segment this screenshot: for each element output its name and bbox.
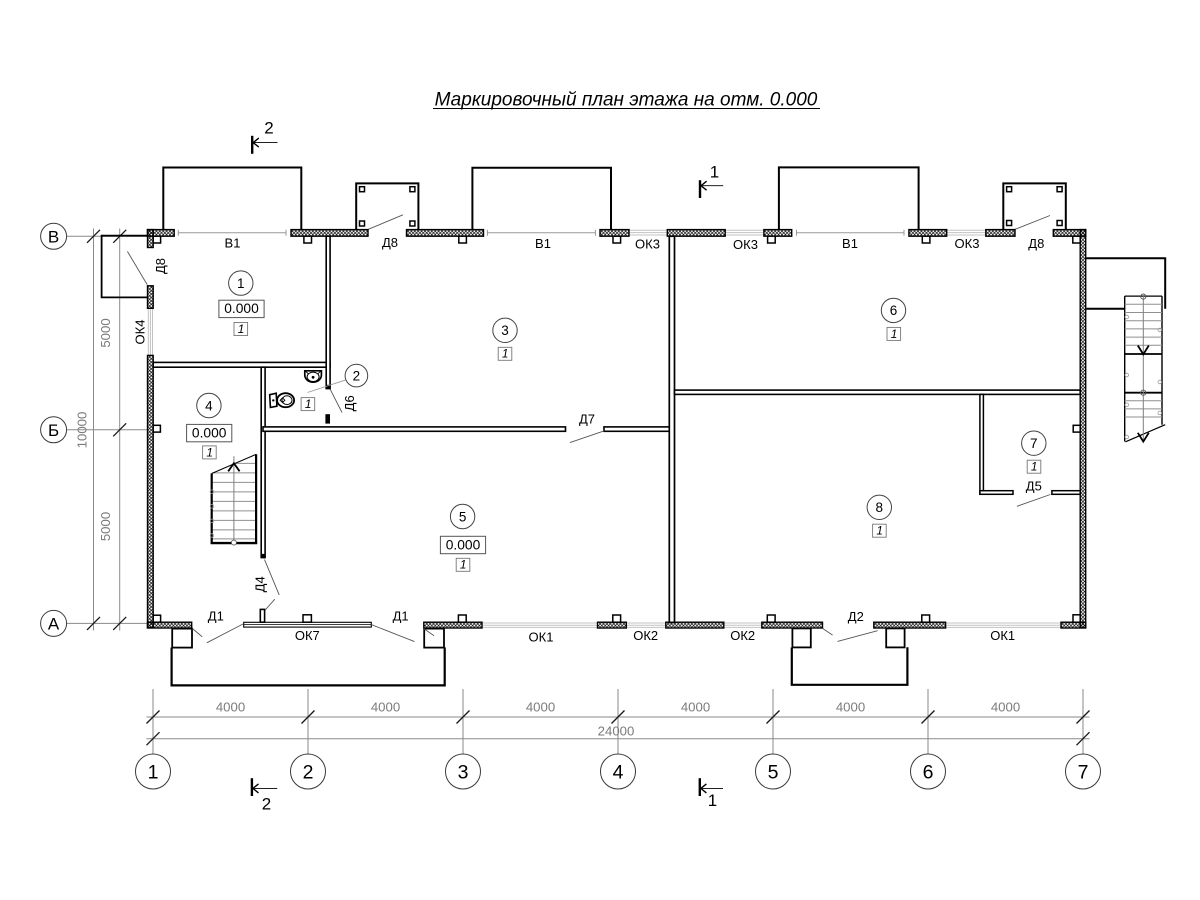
svg-text:В1: В1: [842, 236, 858, 251]
svg-text:4000: 4000: [371, 700, 400, 715]
svg-text:ОК3: ОК3: [733, 237, 758, 252]
svg-text:ОК3: ОК3: [955, 236, 980, 251]
svg-text:Д8: Д8: [153, 258, 168, 274]
svg-text:Б: Б: [48, 421, 59, 440]
svg-text:1: 1: [502, 347, 509, 361]
svg-text:4000: 4000: [681, 700, 710, 715]
svg-text:1: 1: [708, 791, 717, 810]
svg-text:ОК7: ОК7: [295, 628, 320, 643]
svg-text:1: 1: [1031, 460, 1038, 474]
svg-text:0.000: 0.000: [446, 537, 481, 552]
svg-text:Д5: Д5: [1026, 478, 1042, 493]
svg-text:Д4: Д4: [253, 576, 268, 592]
svg-text:4000: 4000: [836, 700, 865, 715]
svg-text:Д8: Д8: [1028, 236, 1044, 251]
svg-text:0.000: 0.000: [192, 425, 227, 440]
svg-text:5: 5: [459, 509, 467, 524]
svg-text:Д7: Д7: [579, 412, 595, 427]
svg-text:7: 7: [1030, 436, 1038, 451]
svg-text:ОК1: ОК1: [990, 628, 1015, 643]
svg-text:ОК4: ОК4: [133, 320, 148, 345]
svg-text:1: 1: [206, 445, 213, 459]
svg-text:4000: 4000: [526, 700, 555, 715]
svg-text:1: 1: [237, 276, 245, 291]
svg-text:В1: В1: [535, 236, 551, 251]
svg-text:4: 4: [205, 398, 213, 413]
svg-text:4: 4: [613, 762, 624, 784]
svg-text:Д6: Д6: [342, 395, 357, 411]
svg-text:3: 3: [458, 762, 469, 784]
svg-text:В1: В1: [225, 236, 241, 251]
svg-text:В: В: [48, 227, 59, 246]
svg-text:1: 1: [876, 524, 883, 538]
svg-text:5: 5: [768, 762, 779, 784]
svg-text:Д1: Д1: [208, 608, 224, 623]
svg-text:1: 1: [305, 397, 312, 411]
svg-text:2: 2: [264, 119, 273, 138]
svg-text:1: 1: [148, 762, 159, 784]
svg-text:ОК2: ОК2: [633, 628, 658, 643]
svg-text:24000: 24000: [598, 724, 635, 739]
svg-text:1: 1: [710, 163, 719, 182]
svg-text:Д8: Д8: [382, 235, 398, 250]
svg-text:1: 1: [460, 558, 467, 572]
svg-text:4000: 4000: [216, 700, 245, 715]
svg-text:ОК1: ОК1: [529, 630, 554, 645]
svg-text:2: 2: [353, 368, 361, 383]
svg-text:6: 6: [923, 762, 934, 784]
svg-text:1: 1: [891, 327, 898, 341]
svg-text:4000: 4000: [991, 700, 1020, 715]
svg-text:Д1: Д1: [393, 608, 409, 623]
svg-text:10000: 10000: [75, 412, 90, 449]
svg-text:5000: 5000: [98, 318, 113, 347]
svg-text:Маркировочный план этажа на от: Маркировочный план этажа на отм. 0.000: [435, 90, 818, 111]
svg-text:1: 1: [238, 322, 245, 336]
svg-text:7: 7: [1078, 762, 1089, 784]
svg-text:Д2: Д2: [848, 609, 864, 624]
svg-text:3: 3: [501, 323, 509, 338]
svg-text:А: А: [48, 614, 60, 633]
svg-text:5000: 5000: [98, 512, 113, 541]
svg-text:6: 6: [890, 303, 898, 318]
svg-text:ОК2: ОК2: [730, 628, 755, 643]
svg-text:ОК3: ОК3: [635, 237, 660, 252]
svg-text:0.000: 0.000: [224, 301, 259, 316]
svg-text:2: 2: [262, 795, 271, 814]
svg-text:8: 8: [876, 500, 884, 515]
svg-text:2: 2: [303, 762, 314, 784]
